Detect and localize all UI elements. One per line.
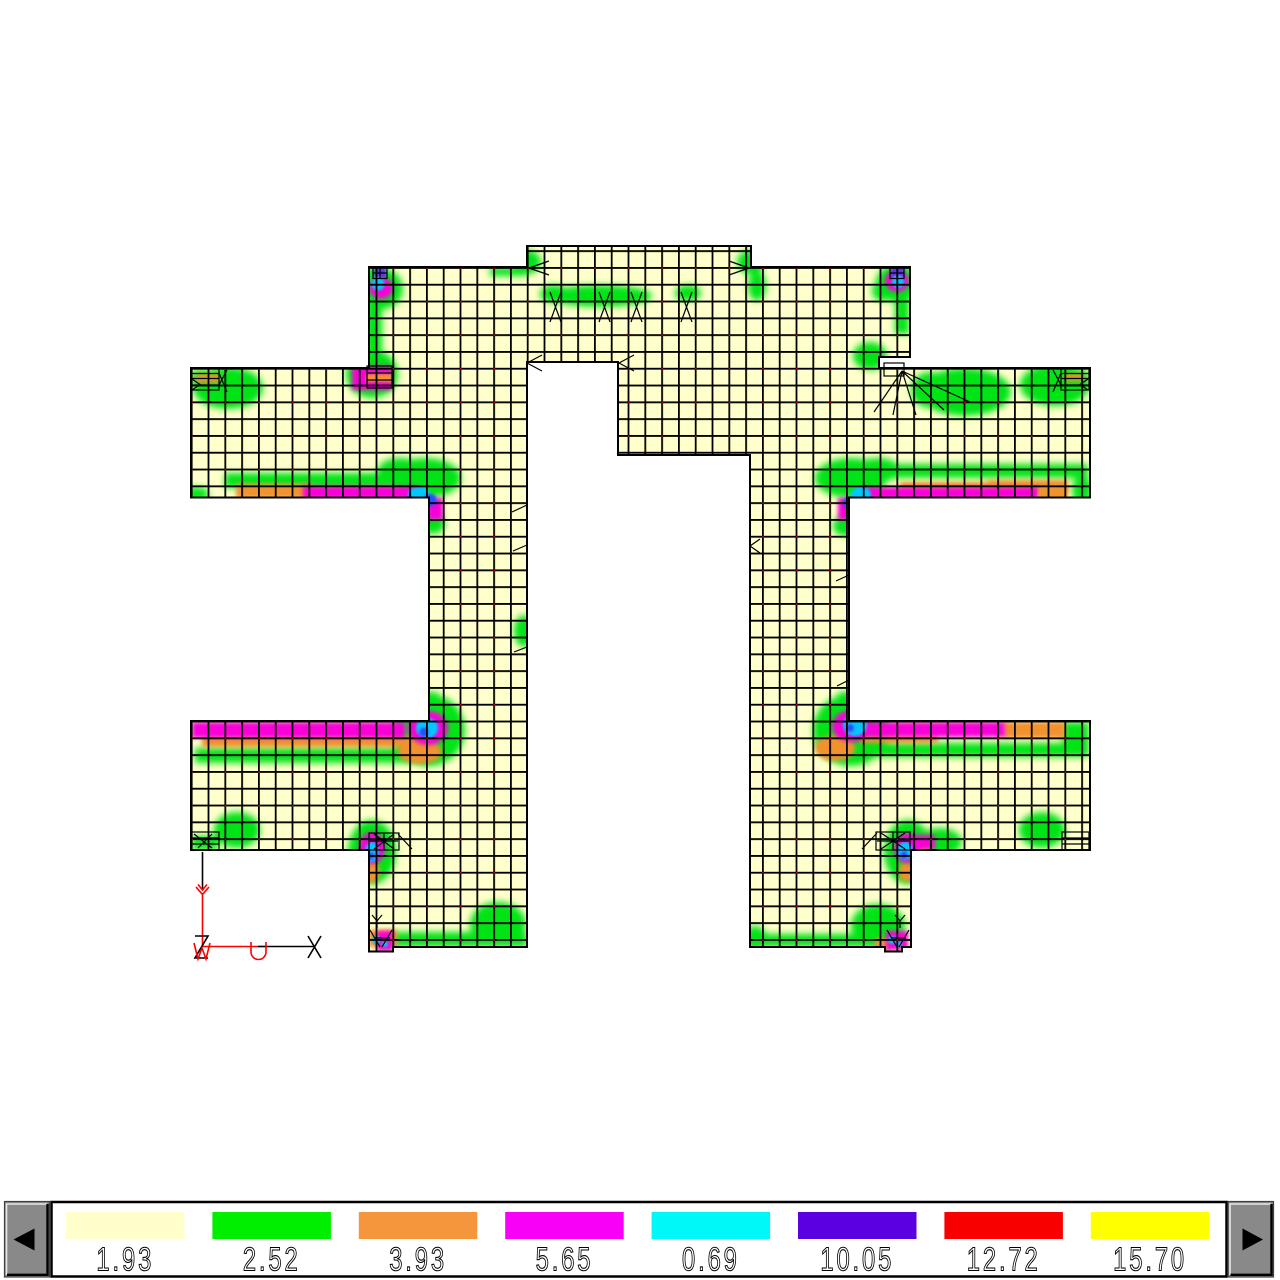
svg-text:12.72: 12.72 — [967, 1242, 1041, 1279]
svg-text:0.69: 0.69 — [682, 1242, 740, 1279]
svg-text:15.70: 15.70 — [1113, 1242, 1187, 1279]
svg-text:3.93: 3.93 — [389, 1242, 447, 1279]
svg-text:2.52: 2.52 — [243, 1242, 301, 1279]
svg-text:5.65: 5.65 — [536, 1242, 594, 1279]
svg-text:10.05: 10.05 — [820, 1242, 894, 1279]
svg-text:1.93: 1.93 — [96, 1242, 154, 1279]
